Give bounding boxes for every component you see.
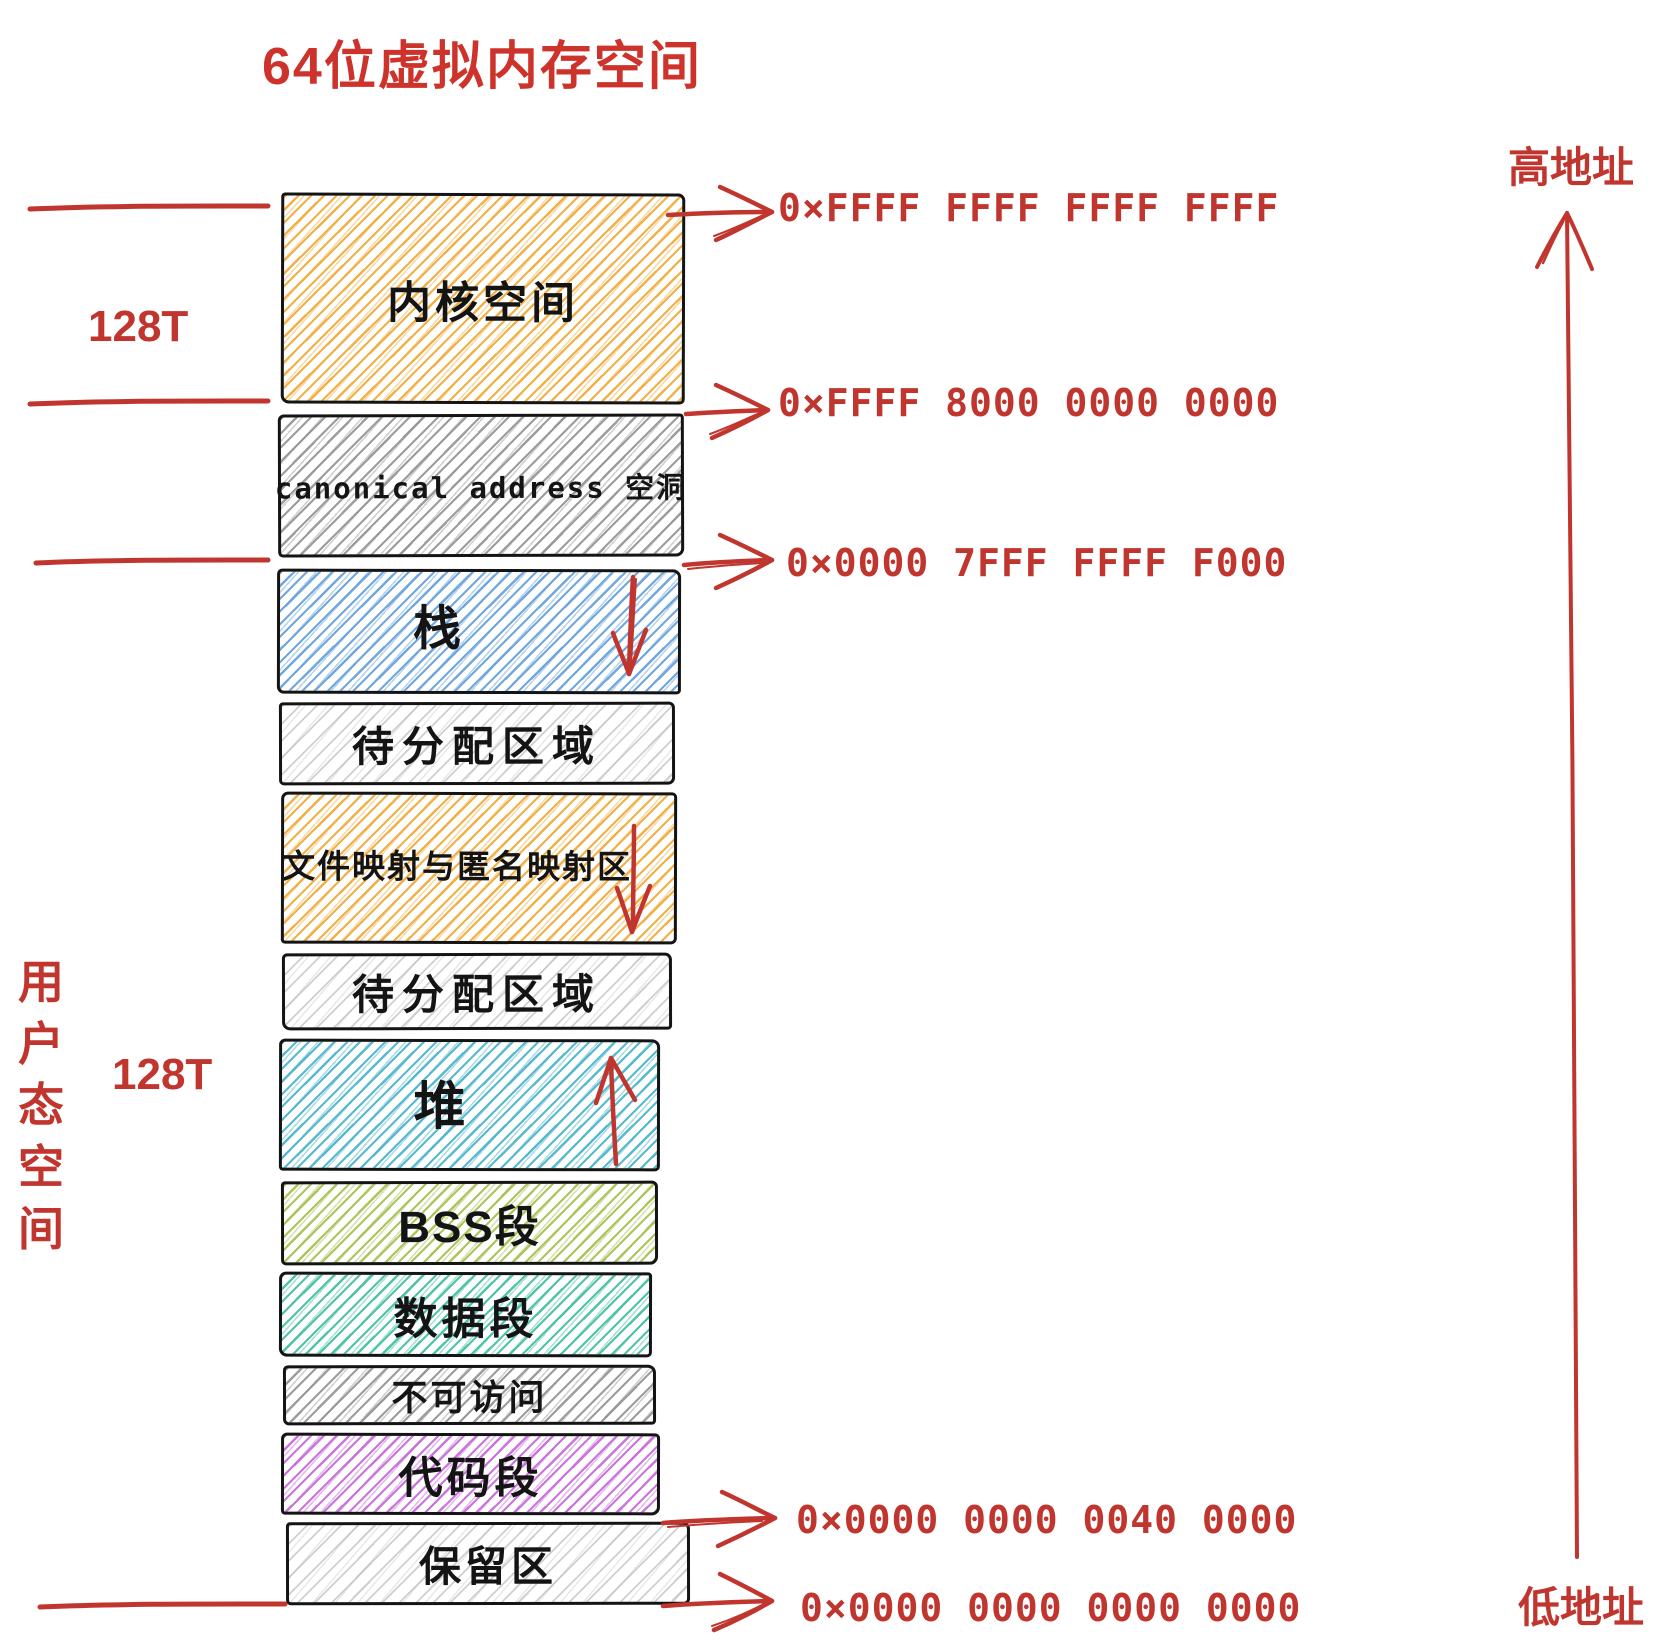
address-user-top: 0×0000 7FFF FFFF F000 bbox=[786, 541, 1287, 585]
user-space-label: 用户态空间 bbox=[16, 952, 66, 1260]
boundary-line-user-top bbox=[36, 560, 268, 563]
region-label: 堆 bbox=[413, 1063, 469, 1138]
region-bss-segment: BSS段 bbox=[281, 1181, 658, 1266]
region-stack: 栈 bbox=[277, 569, 681, 695]
region-label: 代码段 bbox=[398, 1442, 542, 1506]
address-top: 0×FFFF FFFF FFFF FFFF bbox=[778, 186, 1279, 230]
address-arrow-kernel-base bbox=[686, 385, 768, 438]
region-kernel-space: 内核空间 bbox=[281, 192, 686, 404]
region-label: 保留区 bbox=[419, 1533, 557, 1594]
region-file-anon-mapping: 文件映射与匿名映射区 bbox=[281, 792, 677, 945]
address-arrow-user-top bbox=[684, 535, 772, 588]
page-title: 64位虚拟内存空间 bbox=[262, 24, 702, 99]
region-label: 不可访问 bbox=[391, 1369, 547, 1421]
region-heap: 堆 bbox=[279, 1039, 660, 1172]
region-label: 文件映射与匿名映射区 bbox=[282, 840, 632, 889]
address-code-base: 0×0000 0000 0040 0000 bbox=[796, 1498, 1297, 1542]
region-unallocated-2: 待分配区域 bbox=[282, 953, 672, 1031]
region-canonical-address-hole: canonical address 空洞 bbox=[278, 413, 684, 557]
region-label: 内核空间 bbox=[387, 266, 579, 331]
region-unallocated-1: 待分配区域 bbox=[279, 702, 675, 786]
boundary-line-bottom bbox=[40, 1604, 285, 1607]
boundary-line-top bbox=[30, 206, 268, 209]
region-label: 待分配区域 bbox=[352, 713, 602, 774]
boundary-line-kernel-base bbox=[30, 401, 268, 404]
region-reserved: 保留区 bbox=[286, 1522, 690, 1606]
region-inaccessible: 不可访问 bbox=[283, 1365, 656, 1426]
user-size-label: 128T bbox=[112, 1050, 212, 1100]
kernel-size-label: 128T bbox=[88, 302, 188, 352]
region-label: 待分配区域 bbox=[352, 961, 602, 1023]
low-address-label: 低地址 bbox=[1518, 1574, 1644, 1635]
memory-layout-diagram: 64位虚拟内存空间 内核空间 canonical address 空洞 栈 待分… bbox=[0, 0, 1665, 1652]
region-label: 数据段 bbox=[393, 1282, 537, 1346]
region-label: 栈 bbox=[413, 588, 465, 658]
address-zero: 0×0000 0000 0000 0000 bbox=[800, 1586, 1301, 1630]
region-code-segment: 代码段 bbox=[281, 1433, 660, 1516]
region-label: canonical address 空洞 bbox=[275, 464, 687, 507]
address-axis-arrow bbox=[1537, 213, 1592, 1557]
annotations-overlay bbox=[0, 0, 1665, 1652]
region-data-segment: 数据段 bbox=[279, 1272, 652, 1358]
address-kernel-base: 0×FFFF 8000 0000 0000 bbox=[778, 381, 1279, 425]
region-label: BSS段 bbox=[398, 1191, 541, 1255]
high-address-label: 高地址 bbox=[1508, 134, 1634, 195]
